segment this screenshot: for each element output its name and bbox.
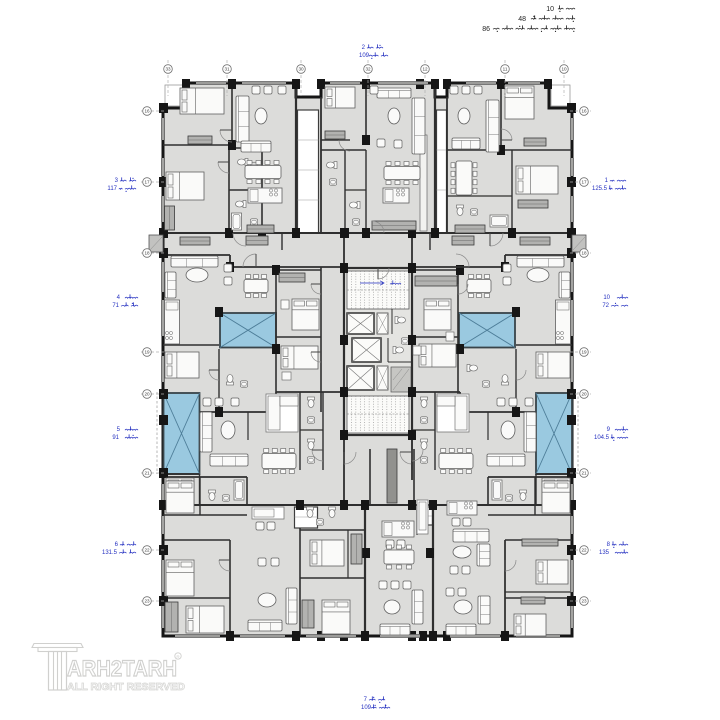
svg-text:10: 10 [561, 67, 567, 72]
svg-text:8: 8 [607, 542, 611, 548]
svg-text:19: 19 [581, 350, 587, 355]
svg-text:23: 23 [144, 599, 150, 604]
svg-text:6: 6 [115, 542, 119, 548]
svg-text:10: 10 [546, 6, 554, 13]
svg-text:71: 71 [112, 303, 119, 309]
svg-text:20: 20 [144, 392, 150, 397]
svg-text:2: 2 [362, 45, 366, 51]
svg-text:17: 17 [144, 180, 150, 185]
svg-text:86: 86 [482, 26, 490, 33]
svg-text:21: 21 [144, 471, 150, 476]
svg-text:ALL RIGHT RESERVED: ALL RIGHT RESERVED [67, 681, 185, 693]
svg-text:104.5: 104.5 [594, 435, 610, 441]
svg-text:22: 22 [581, 548, 587, 553]
svg-text:19: 19 [144, 350, 150, 355]
svg-text:31: 31 [224, 67, 230, 72]
svg-text:ARH2TARH: ARH2TARH [67, 656, 177, 681]
svg-text:4: 4 [117, 295, 121, 301]
svg-text:135: 135 [599, 550, 610, 556]
svg-text:21: 21 [581, 471, 587, 476]
svg-text:16: 16 [581, 109, 587, 114]
svg-text:72: 72 [602, 303, 609, 309]
svg-text:109: 109 [361, 705, 372, 711]
svg-text:18: 18 [581, 251, 587, 256]
svg-text:10: 10 [603, 295, 610, 301]
svg-text:20: 20 [581, 392, 587, 397]
svg-text:5: 5 [117, 427, 121, 433]
svg-text:117: 117 [107, 186, 117, 192]
svg-text:30: 30 [298, 67, 304, 72]
svg-text:23: 23 [581, 599, 587, 604]
svg-text:11: 11 [503, 67, 508, 72]
svg-text:33: 33 [165, 67, 171, 72]
svg-text:17: 17 [581, 180, 587, 185]
svg-text:32: 32 [365, 67, 371, 72]
svg-text:125.5: 125.5 [592, 186, 608, 192]
svg-text:48: 48 [518, 16, 526, 23]
svg-text:16: 16 [144, 109, 150, 114]
svg-text:9: 9 [607, 427, 611, 433]
svg-text:22: 22 [144, 548, 150, 553]
svg-text:12: 12 [422, 67, 428, 72]
svg-text:7: 7 [364, 697, 368, 703]
svg-text:18: 18 [144, 251, 150, 256]
svg-text:3: 3 [115, 178, 119, 184]
svg-text:91: 91 [112, 435, 119, 441]
svg-text:109: 109 [359, 53, 370, 59]
svg-text:131.5: 131.5 [102, 550, 118, 556]
svg-text:1: 1 [605, 178, 609, 184]
